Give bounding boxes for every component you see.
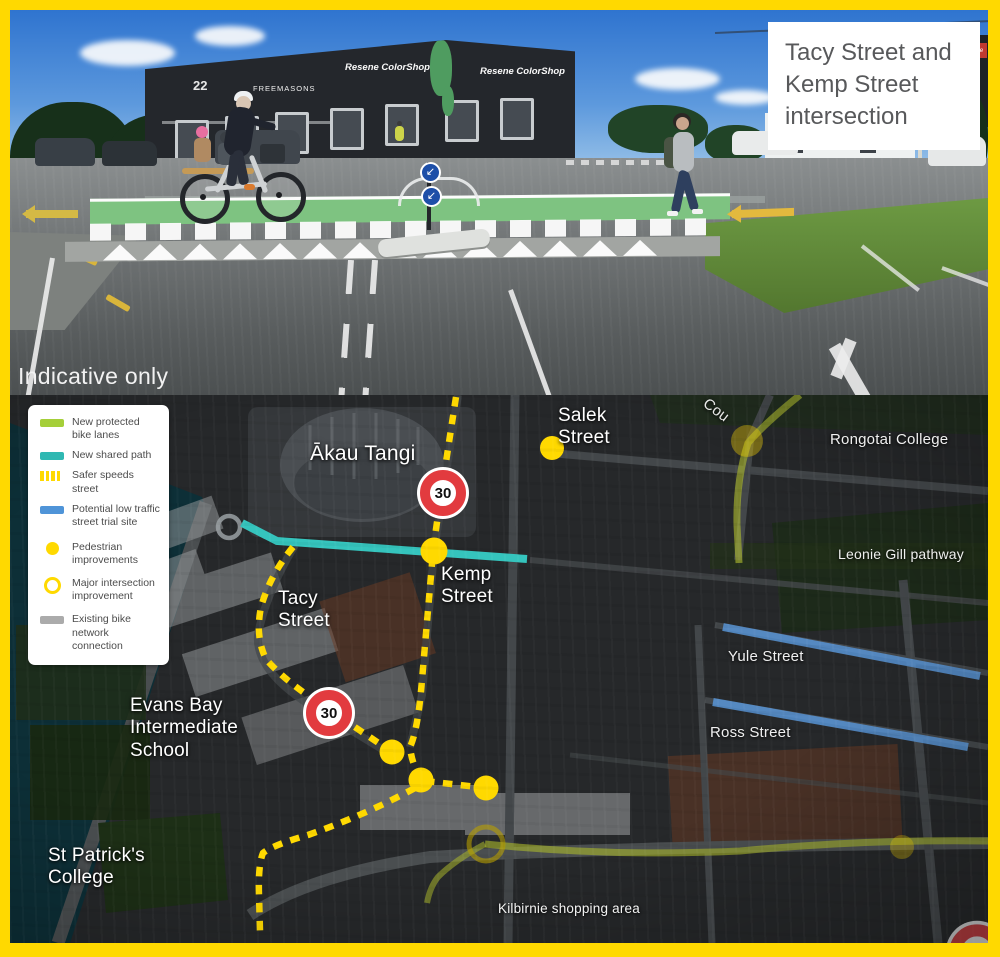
label-st-patricks: St Patrick's College: [48, 845, 148, 890]
pedestrian-torso: [673, 132, 694, 172]
label-akau-tangi: Ākau Tangi: [310, 442, 416, 467]
bike-basket: [260, 144, 285, 163]
keep-left-sign-icon: ↙: [420, 162, 441, 183]
speed-limit-30-sign: 30: [306, 690, 352, 736]
pedestrian-dot: [421, 538, 448, 565]
parked-car: [102, 141, 157, 166]
teal-line-swatch-icon: [40, 452, 64, 460]
cloud: [195, 26, 265, 46]
pedestrian-dot: [380, 740, 405, 765]
label-evans-bay-school: Evans Bay Intermediate School: [130, 695, 248, 762]
label-tacy-street: Tacy Street: [278, 588, 342, 633]
label-yule-street: Yule Street: [728, 648, 804, 666]
label-kilbirnie-shopping: Kilbirnie shopping area: [498, 901, 640, 917]
keep-left-sign-icon: ↙: [421, 186, 442, 207]
photo-caption: Tacy Street and Kemp Street intersection: [785, 37, 964, 133]
cyclist-with-cargo-bike: [160, 88, 320, 223]
legend-item-shared-path: New shared path: [40, 449, 161, 462]
pedestrian: [655, 110, 715, 232]
building-window: [330, 108, 364, 150]
pedestrian-dot: [474, 776, 499, 801]
map-legend: New protected bike lanes New shared path…: [28, 405, 169, 665]
child-pink-helmet: [196, 126, 208, 138]
pedestrian-shoe: [667, 211, 678, 216]
major-intersection-marker: [731, 425, 763, 457]
child-passenger: [194, 138, 211, 162]
label-kemp-street: Kemp Street: [441, 564, 507, 609]
indicative-only-watermark: Indicative only: [18, 363, 168, 390]
yellow-dash-swatch-icon: [40, 471, 64, 481]
label-salek-street: Salek Street: [558, 405, 622, 450]
legend-item-pedestrian: Pedestrian improvements: [40, 541, 161, 567]
parked-car: [35, 138, 95, 166]
pedestrian-shoe: [692, 209, 703, 214]
artist-impression-photo: 22 FREEMASONS Resene ColorShop Resene Co…: [10, 10, 988, 395]
distant-cyclist: [395, 126, 404, 141]
yellow-road-arrow: [26, 210, 78, 218]
resene-colorshop-sign: Resene ColorShop: [480, 66, 565, 77]
green-mural: [442, 86, 454, 116]
legend-item-existing-network: Existing bike network connection: [40, 613, 161, 652]
photo-caption-box: Tacy Street and Kemp Street intersection: [768, 22, 980, 150]
improvements-map: 30 30 30 Ākau Tangi Salek Street Kemp St…: [10, 395, 988, 943]
pedestrian-head: [676, 117, 689, 130]
label-leonie-gill: Leonie Gill pathway: [838, 546, 964, 563]
gray-line-swatch-icon: [40, 616, 64, 624]
building-window: [500, 98, 534, 140]
rider-shoe: [244, 184, 255, 190]
legend-item-major-intersection: Major intersection improvement: [40, 577, 161, 603]
cloud: [635, 68, 720, 90]
cloud: [80, 40, 175, 66]
cloud: [715, 90, 775, 105]
legend-item-safer-speeds: Safer speeds street: [40, 469, 161, 495]
label-ross-street: Ross Street: [710, 724, 791, 742]
yellow-ring-swatch-icon: [40, 577, 64, 594]
legend-item-protected-lanes: New protected bike lanes: [40, 416, 161, 442]
major-intersection-marker: [890, 835, 914, 859]
field: [650, 395, 988, 435]
resene-colorshop-sign: Resene ColorShop: [345, 62, 430, 73]
label-rongotai-college: Rongotai College: [830, 431, 948, 449]
green-line-swatch-icon: [40, 419, 64, 427]
blue-line-swatch-icon: [40, 506, 64, 514]
speed-limit-30-sign: 30: [420, 470, 466, 516]
pedestrian-dot: [409, 768, 434, 793]
yellow-dot-swatch-icon: [40, 542, 64, 555]
legend-item-low-traffic: Potential low traffic street trial site: [40, 503, 161, 529]
